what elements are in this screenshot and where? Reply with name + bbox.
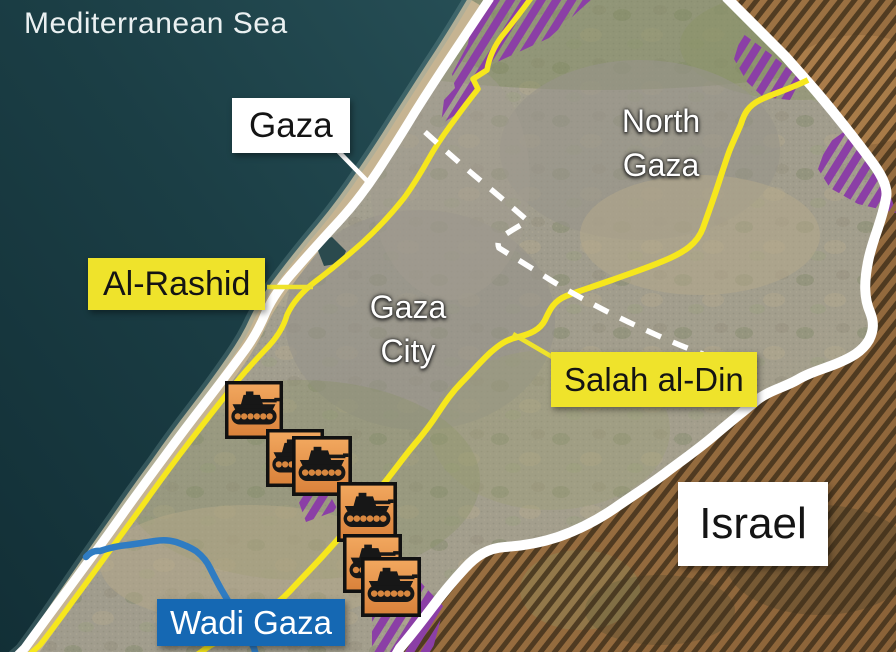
israel-label: Israel — [678, 482, 828, 566]
region-label-north-gaza: North Gaza — [586, 100, 736, 187]
sea-label: Mediterranean Sea — [24, 7, 288, 41]
callout-salah-al-din: Salah al-Din — [551, 352, 757, 407]
tank-icon — [363, 559, 419, 615]
callout-gaza: Gaza — [232, 98, 350, 153]
callout-al-rashid: Al-Rashid — [88, 258, 265, 310]
north-gaza-line2: Gaza — [586, 144, 736, 188]
gaza-city-line2: City — [342, 330, 474, 374]
callout-wadi-gaza: Wadi Gaza — [157, 599, 345, 646]
tank-icon — [339, 484, 395, 540]
gaza-map-graphic: Mediterranean Sea North Gaza Gaza City G… — [0, 0, 896, 652]
gaza-city-line1: Gaza — [342, 286, 474, 330]
region-label-gaza-city: Gaza City — [342, 286, 474, 373]
north-gaza-line1: North — [586, 100, 736, 144]
